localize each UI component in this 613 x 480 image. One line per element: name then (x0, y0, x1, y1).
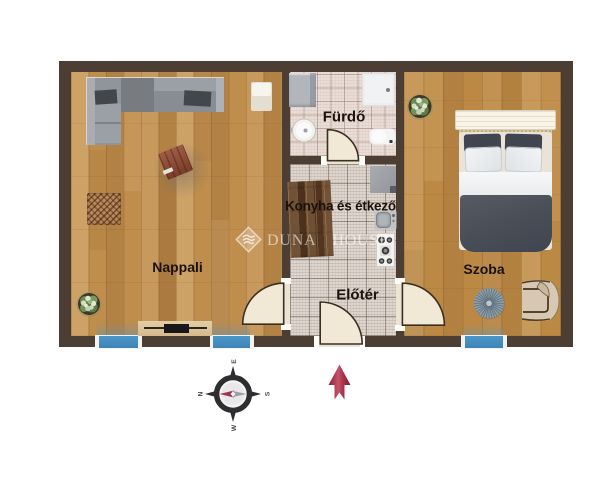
svg-text:DUNA HOUSE: DUNA HOUSE (267, 232, 390, 249)
svg-text:W: W (231, 424, 238, 431)
svg-text:S: S (265, 391, 271, 396)
svg-text:N: N (198, 391, 205, 396)
svg-text:E: E (231, 359, 238, 364)
